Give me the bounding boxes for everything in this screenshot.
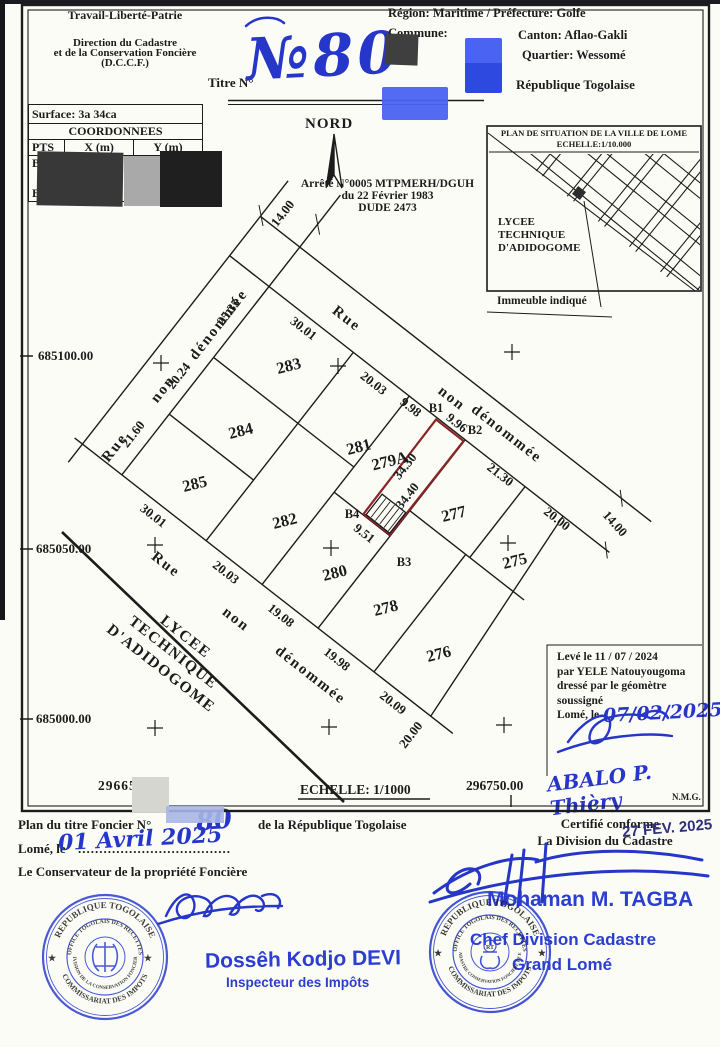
inset-street-line [511,19,618,151]
inset-street-line [636,120,720,252]
parcel-number: 285 [180,471,209,495]
inset-callout-underline [487,312,612,317]
grid-cross [323,540,339,556]
boundary-point-label: B3 [397,555,412,569]
measurement-label: 19.08 [265,600,298,630]
stamp-right-emblem: RT [471,933,509,971]
inset-street-line [598,89,705,221]
measurement-label: 14.00 [600,508,631,540]
measurement-label: 30.01 [137,501,169,531]
measurement-label: 20.03 [358,368,391,398]
inset-street-line [542,44,649,176]
inset-street-line [573,69,680,201]
grid-cross [496,717,512,733]
inset-street-line [539,6,720,233]
grid-cross [147,720,163,736]
inset-street-line [531,15,720,242]
parcel-number: 284 [226,418,255,442]
leve-box-border [547,645,702,776]
svg-text:★: ★ [48,953,57,963]
inset-street-line [692,165,720,297]
inset-street-line [536,39,643,171]
svg-text:★: ★ [144,953,153,963]
boundary-point-label: B2 [468,423,483,437]
measurement-label: 34.40 [392,480,422,512]
measurement-label: 9.98 [397,394,425,420]
redaction-box-footer-blue [166,806,224,823]
inset-street-line [509,43,720,270]
boundary-point-label: B1 [429,401,444,415]
street-name-label: non [219,604,253,635]
redaction-box-commune-dark [384,33,418,65]
titre-tilde-mark [246,18,284,26]
svg-text:★: ★ [434,948,443,958]
parcel-number: 280 [320,560,349,584]
redaction-box-coords-2 [124,156,162,206]
parcel-number: 283 [274,353,303,377]
stamp-left-emblem [85,937,125,977]
inset-street-line [567,64,674,196]
grid-cross [321,719,337,735]
measurement-label: 30.01 [288,313,320,343]
redaction-box-blue-tall [465,38,502,93]
measurement-label: 21.30 [484,459,516,489]
street-name-label: Rue [329,303,364,335]
svg-text:RT: RT [486,945,494,951]
chef-signature [430,844,708,906]
inset-street-line [605,94,712,226]
cadastral-plan-document: Travail-Liberté-Patrie Direction du Cada… [0,0,720,1047]
measurement-label: 19.98 [321,644,354,674]
inset-street-line [516,34,720,261]
grid-cross [500,535,516,551]
measurement-label: 20.03 [210,557,243,587]
measurement-label: 20.00 [396,719,426,751]
inset-street-line [629,115,720,247]
redaction-box-coords-3 [160,151,222,207]
inset-street-line [667,145,720,277]
measurement-label: 20.00 [541,504,573,534]
street-name-label: Rue [148,549,183,581]
measurement-label: 20.09 [377,688,410,718]
redaction-box-blue-wide [382,87,448,120]
north-arrow-icon [326,134,342,188]
inset-street-line [660,140,720,272]
redaction-box-coords-1 [37,151,124,206]
svg-text:★: ★ [538,948,547,958]
frame-inner [28,10,703,806]
surveyor-signature [558,711,672,752]
boundary-point-label: B4 [345,507,360,521]
inset-street-line [493,62,720,289]
inset-street-line [471,90,720,317]
svg-text:DIR. CADASTRE CONSERVATION FON: DIR. CADASTRE CONSERVATION FONCIERE ET E… [0,0,522,984]
redaction-box-easting [132,777,169,812]
parcel-number: 275 [500,548,529,572]
inspecteur-signature [158,894,282,924]
grid-cross [330,358,346,374]
parcel-number: 278 [371,595,400,619]
parcel-number: 276 [424,641,453,665]
grid-cross [153,355,169,371]
parcel-number: 282 [270,508,299,532]
parcel-number: 277 [439,501,468,525]
grid-cross [504,344,520,360]
